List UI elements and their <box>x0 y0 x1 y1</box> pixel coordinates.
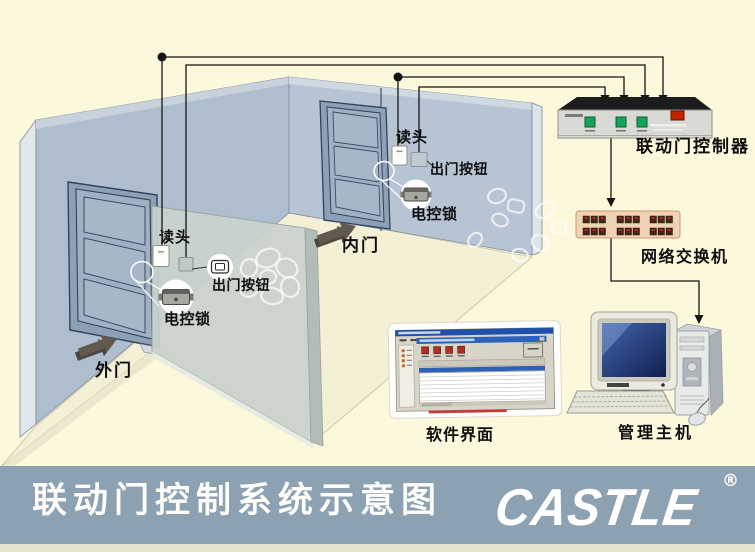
close-icon <box>539 337 544 341</box>
controller-device <box>558 97 712 138</box>
registered-trademark-icon: ® <box>722 473 739 490</box>
inner-reader-label: 读头 <box>396 130 428 145</box>
outer-reader-device <box>153 246 169 267</box>
controller-label: 联动门控制器 <box>636 139 750 156</box>
management-host-label: 管理主机 <box>618 425 694 441</box>
inner-exit-button-device <box>411 153 427 167</box>
controller-green-button <box>616 117 626 127</box>
lock-tab <box>428 192 432 198</box>
inner-exit-button-label: 出门按钮 <box>430 163 488 177</box>
outer-door <box>68 182 166 356</box>
network-switch-label: 网络交换机 <box>641 249 729 265</box>
software-ui-label: 软件界面 <box>426 427 494 443</box>
controller-power-switch <box>671 111 684 120</box>
inner-door-label: 内门 <box>342 238 380 255</box>
tree-panel <box>399 345 415 407</box>
computer <box>567 312 723 427</box>
network-switch-device <box>576 211 680 238</box>
tower-side <box>709 330 723 415</box>
lock-tab <box>159 294 163 301</box>
outer-lock-label: 电控锁 <box>164 312 211 327</box>
arrow-down-icon <box>695 315 704 324</box>
inner-door <box>320 88 390 231</box>
controller-brand-mark <box>565 114 583 117</box>
inner-reader-device <box>392 146 407 165</box>
lock-tab <box>190 294 194 301</box>
outer-exit-button-label: 出门按钮 <box>212 279 270 293</box>
brand-logo: CASTLE <box>492 482 700 534</box>
interlock-door-system-diagram: 读头 出门按钮 电控锁 外门 读头 出门按钮 电控锁 内门 联动门控制器 网络交… <box>0 0 755 552</box>
controller-green-button <box>637 117 647 127</box>
inner-lock-label: 电控锁 <box>411 207 458 222</box>
lock-tab <box>401 192 405 198</box>
footer-bottom-strip <box>0 544 755 552</box>
arrow-down-icon <box>607 198 616 207</box>
controller-green-button <box>585 117 595 127</box>
outer-exit-button-device <box>179 258 193 272</box>
diagram-canvas <box>0 0 755 470</box>
outer-reader-label: 读头 <box>159 230 191 245</box>
outer-door-label: 外门 <box>95 363 133 380</box>
diagram-title: 联动门控制系统示意图 <box>32 484 442 519</box>
outer-button-callout <box>207 254 233 280</box>
software-window <box>388 321 562 419</box>
